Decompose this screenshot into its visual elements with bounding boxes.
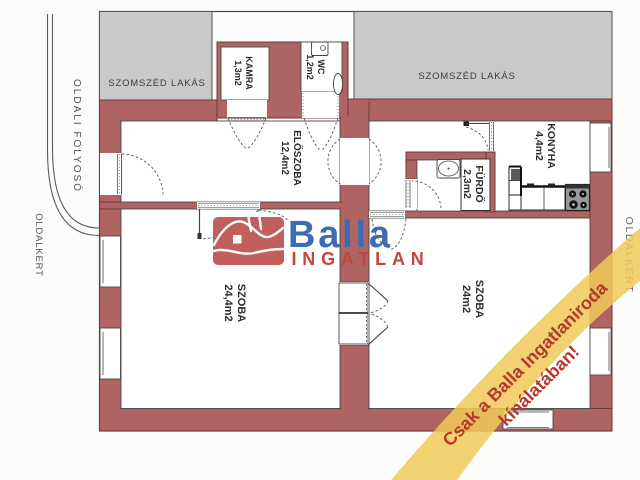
svg-text:KAMRA1,3m2: KAMRA1,3m2 bbox=[233, 56, 254, 90]
svg-text:SZOMSZÉD LAKÁS: SZOMSZÉD LAKÁS bbox=[108, 78, 205, 89]
svg-text:SZOBA24m2: SZOBA24m2 bbox=[460, 280, 485, 319]
svg-text:OLDALKERT: OLDALKERT bbox=[33, 213, 44, 277]
svg-text:FÜRDŐ2,3m2: FÜRDŐ2,3m2 bbox=[461, 165, 486, 202]
svg-text:SZOBA24,4m2: SZOBA24,4m2 bbox=[222, 284, 247, 323]
svg-text:INGATLAN: INGATLAN bbox=[292, 249, 430, 269]
svg-text:SZOMSZÉD LAKÁS: SZOMSZÉD LAKÁS bbox=[418, 71, 515, 82]
svg-text:OLDALI FOLYOSÓ: OLDALI FOLYOSÓ bbox=[71, 79, 84, 193]
